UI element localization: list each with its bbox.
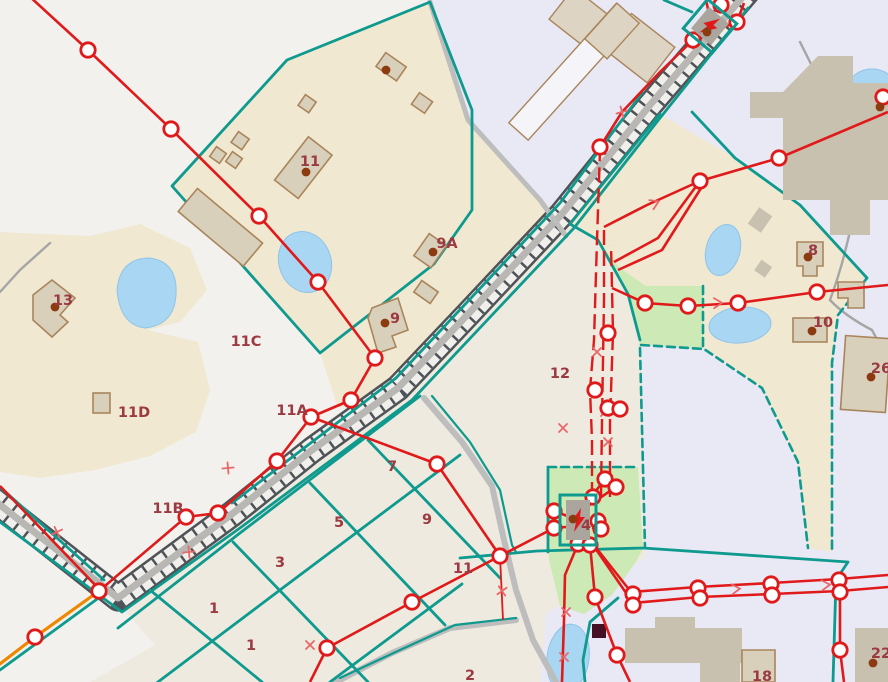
parcel-label: 2 xyxy=(465,668,475,682)
parcel-label: 4 xyxy=(581,518,591,534)
utility-pole[interactable] xyxy=(593,140,607,154)
x-mark-icon xyxy=(306,641,314,649)
utility-pole[interactable] xyxy=(368,351,382,365)
utility-pole[interactable] xyxy=(405,595,419,609)
line-cross-mark xyxy=(559,424,567,432)
utility-pole[interactable] xyxy=(270,454,284,468)
line-cross-mark xyxy=(306,641,314,649)
parcel-label: 11 xyxy=(453,561,473,577)
parcel-grid xyxy=(150,590,262,682)
parcel-beige-west-blob xyxy=(0,224,210,478)
utility-pole[interactable] xyxy=(164,122,178,136)
utility-pole[interactable] xyxy=(693,174,707,188)
utility-pole[interactable] xyxy=(626,598,640,612)
parcel-label: 22 xyxy=(871,646,888,662)
parcel-label: 1 xyxy=(209,601,219,617)
parcel-label: 8 xyxy=(808,243,818,259)
address-point xyxy=(569,515,578,524)
map-canvas[interactable]: 119A1311C11D911A11B759311112124102681822 xyxy=(0,0,888,682)
parcel-label: 26 xyxy=(871,361,888,377)
building-dark xyxy=(592,624,606,638)
utility-pole[interactable] xyxy=(430,457,444,471)
utility-pole[interactable] xyxy=(320,641,334,655)
parcel-label: 11A xyxy=(276,403,308,419)
building xyxy=(700,663,740,682)
parcel-grid xyxy=(233,542,368,682)
power-line-circuit xyxy=(610,245,613,497)
utility-pole[interactable] xyxy=(609,480,623,494)
pond xyxy=(117,258,176,328)
utility-pole[interactable] xyxy=(28,630,42,644)
x-mark-icon xyxy=(559,424,567,432)
utility-pole[interactable] xyxy=(92,584,106,598)
utility-pole[interactable] xyxy=(211,506,225,520)
utility-pole[interactable] xyxy=(601,326,615,340)
utility-pole[interactable] xyxy=(693,591,707,605)
utility-pole[interactable] xyxy=(876,90,888,104)
utility-pole[interactable] xyxy=(588,590,602,604)
address-point xyxy=(703,28,712,37)
building xyxy=(93,393,110,413)
utility-pole[interactable] xyxy=(311,275,325,289)
utility-pole[interactable] xyxy=(765,588,779,602)
x-mark-icon xyxy=(593,348,601,356)
parcel-label: 1 xyxy=(246,638,256,654)
address-point xyxy=(381,319,390,328)
address-point xyxy=(382,66,391,75)
utility-pole[interactable] xyxy=(344,393,358,407)
utility-pole[interactable] xyxy=(731,296,745,310)
utility-pole[interactable] xyxy=(681,299,695,313)
parcel-label: 3 xyxy=(275,555,285,571)
parcel-label: 5 xyxy=(334,515,344,531)
parcel-label: 11D xyxy=(118,405,150,421)
power-line-circuit xyxy=(601,230,604,497)
utility-pole[interactable] xyxy=(493,549,507,563)
parcel-label: 13 xyxy=(53,293,73,309)
parcel-label: 11 xyxy=(300,154,320,170)
parcel-label: 7 xyxy=(387,459,397,475)
utility-pole[interactable] xyxy=(81,43,95,57)
parcel-label: 9 xyxy=(422,512,432,528)
utility-pole[interactable] xyxy=(833,643,847,657)
utility-pole[interactable] xyxy=(810,285,824,299)
parcel-label: 12 xyxy=(550,366,570,382)
address-point xyxy=(876,103,885,112)
utility-pole[interactable] xyxy=(588,383,602,397)
utility-pole[interactable] xyxy=(610,648,624,662)
utility-pole[interactable] xyxy=(613,402,627,416)
parcel-label: 18 xyxy=(752,669,772,682)
parcel-label: 11C xyxy=(231,334,262,350)
map-svg[interactable]: 119A1311C11D911A11B759311112124102681822 xyxy=(0,0,888,682)
utility-pole[interactable] xyxy=(252,209,266,223)
parcel-label: 11B xyxy=(152,501,183,517)
utility-pole[interactable] xyxy=(772,151,786,165)
parcel-label: 9 xyxy=(390,311,400,327)
parcel-label: 9A xyxy=(436,236,458,252)
utility-pole[interactable] xyxy=(638,296,652,310)
line-cross-mark xyxy=(593,348,601,356)
utility-pole[interactable] xyxy=(833,585,847,599)
parcel-label: 10 xyxy=(813,315,833,331)
